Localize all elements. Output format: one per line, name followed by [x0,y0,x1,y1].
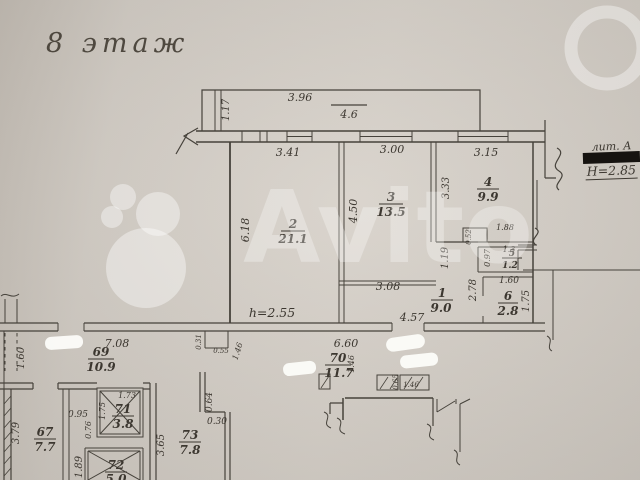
dim-4-57: 4.57 [399,311,425,324]
page-title: 8 этаж [46,28,189,59]
dimension-labels: 1.17 3.96 4.6 3.41 3.00 3.15 6.18 4.50 3… [11,91,532,478]
dim-6-60: 6.60 [334,337,359,350]
dim-1-3: 1.3 [503,245,516,254]
dim-1-46-jog: 1.46 [231,341,245,361]
room-label-6: 6 2.8 [497,289,520,318]
liter-note: лит. А Н=2.85 [582,139,640,180]
svg-text:21.1: 21.1 [277,232,307,246]
svg-text:6: 6 [504,289,513,303]
dim-4-50: 4.50 [347,199,360,225]
svg-text:73: 73 [182,428,199,442]
redaction-pill [399,352,438,369]
dim-1-60-room6: 1.60 [499,276,519,286]
svg-text:71: 71 [115,402,132,416]
svg-text:5.0: 5.0 [106,472,128,480]
walls [0,90,640,480]
room-label-72: 72 5.0 [105,458,127,480]
dim-0-31: 0.31 [195,334,203,350]
svg-text:9.0: 9.0 [431,301,453,315]
dim-1-46-mid: 1.46 [347,355,356,373]
floor-plan-scan: 8 этаж 2 21.1 3 13.5 4 9.9 5 1.2 6 2.8 [0,0,640,480]
dim-1-88: 1.88 [496,223,514,232]
watermark-dot [110,184,136,210]
room-label-67: 67 7.7 [34,425,56,454]
dim-0-97: 0.97 [483,248,492,267]
room-label-3: 3 13.5 [376,190,405,219]
svg-text:2: 2 [288,217,297,231]
dim-0-30: 0.30 [207,417,227,427]
svg-text:13.5: 13.5 [376,205,405,219]
watermark-dot [106,228,186,308]
dim-2-78: 2.78 [468,279,479,302]
svg-text:2.8: 2.8 [497,304,520,318]
building-height-label: Н=2.85 [586,162,637,179]
watermark-ring [571,12,640,84]
dim-1-46-vent: 1.46 [403,381,419,389]
dim-1-73: 1.73 [118,391,136,400]
svg-text:7.7: 7.7 [35,440,57,454]
dim-1-75-lift: 1.75 [98,402,107,420]
dim-3-15: 3.15 [474,146,499,159]
dim-0-95: 0.95 [68,410,88,420]
dim-6-18: 6.18 [239,218,252,243]
dim-3-41: 3.41 [276,146,301,159]
redaction-pill [45,335,84,351]
dim-0-64: 0.64 [205,392,215,412]
dim-1-19: 1.19 [440,246,451,269]
dim-3-96: 3.96 [288,91,313,104]
watermark-dot [101,206,123,228]
room-label-73: 73 7.8 [179,428,201,457]
ceiling-height-note: h=2.55 [249,305,295,320]
room-label-4: 4 9.9 [477,175,499,204]
svg-text:4: 4 [484,175,492,189]
room-label-71: 71 3.8 [112,402,134,431]
svg-text:70: 70 [330,351,347,365]
svg-text:72: 72 [108,458,125,472]
room-label-2: 2 21.1 [277,217,307,246]
dim-0-52: 0.52 [465,229,473,245]
dim-4-6: 4.6 [339,108,358,121]
dim-3-00: 3.00 [380,143,405,156]
dim-1-60-left: 1.60 [16,346,27,369]
dim-1-75-room6: 1.75 [521,290,532,312]
svg-text:1: 1 [438,286,446,300]
dim-0-65: 0.65 [392,374,400,390]
dim-3-65: 3.65 [156,434,167,456]
svg-text:9.9: 9.9 [478,190,500,204]
redaction-pill [385,333,426,352]
dim-3-08: 3.08 [376,280,401,293]
dim-3-33: 3.33 [441,177,452,199]
svg-text:3: 3 [387,190,395,204]
svg-text:1.2: 1.2 [502,261,518,271]
dim-1-17: 1.17 [221,98,232,121]
watermark-dot [136,192,180,236]
floor-plan: 8 этаж 2 21.1 3 13.5 4 9.9 5 1.2 6 2.8 [0,0,640,480]
dim-0-76: 0.76 [84,421,93,439]
dim-0-55: 0.55 [213,347,229,355]
svg-text:7.8: 7.8 [180,443,202,457]
redaction-pill [282,360,316,376]
dim-1-89: 1.89 [74,455,85,478]
svg-text:10.9: 10.9 [86,360,116,374]
dim-7-08: 7.08 [105,337,130,350]
room-label-1: 1 9.0 [431,286,453,315]
dim-3-79: 3.79 [11,421,22,444]
svg-text:67: 67 [37,425,54,439]
svg-text:3.8: 3.8 [113,417,135,431]
